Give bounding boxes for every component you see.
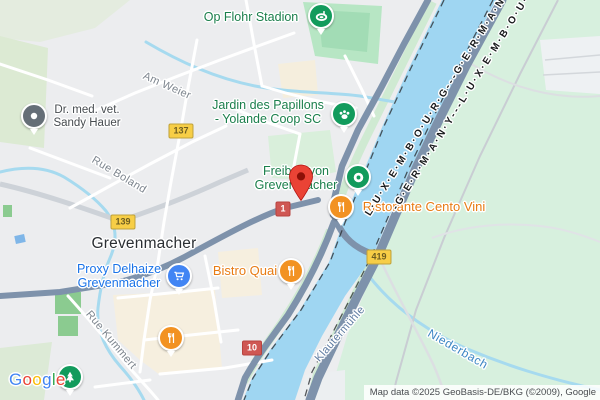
proxy-label-line2: Grevenmacher	[77, 276, 161, 290]
proxy-pin[interactable]	[166, 263, 192, 289]
poi-dot-icon	[28, 110, 40, 122]
bistro-pin[interactable]	[278, 258, 304, 284]
pool-ring-icon	[352, 171, 365, 184]
bistro-label[interactable]: Bistro Quai	[213, 264, 277, 278]
jardin-pin[interactable]	[331, 101, 357, 127]
route-shield-cr139: 139	[110, 215, 135, 230]
jardin-label-line1: Jardin des Papillons	[212, 98, 324, 112]
proxy-label-line1: Proxy Delhaize	[77, 262, 161, 276]
stadium-label[interactable]: Op Flohr Stadion	[204, 10, 299, 24]
map-canvas[interactable]: 137 139 419 1 10 Op Flohr Stadion Dr. me…	[0, 0, 600, 400]
google-logo-letter: G	[9, 370, 23, 389]
vet-label-line1: Dr. med. vet.	[53, 104, 120, 117]
stadium-pin[interactable]	[308, 3, 334, 29]
vet-label[interactable]: Dr. med. vet. Sandy Hauer	[53, 104, 120, 130]
vet-label-line2: Sandy Hauer	[53, 117, 120, 130]
restaurant-icon	[285, 265, 297, 277]
vet-pin[interactable]	[21, 103, 47, 129]
google-logo[interactable]: Google	[9, 370, 66, 390]
route-shield-n10: 10	[242, 341, 262, 356]
google-logo-letter: e	[56, 370, 66, 389]
ristorante-pin[interactable]	[328, 194, 354, 220]
shopping-cart-icon	[173, 270, 185, 282]
google-logo-letter: g	[42, 370, 52, 389]
freibad-pin[interactable]	[345, 164, 371, 190]
stadium-icon	[315, 10, 328, 23]
town-restaurant-pin[interactable]	[158, 325, 184, 351]
red-pin-icon	[288, 164, 314, 202]
google-logo-letter: o	[23, 370, 33, 389]
jardin-label-line2: - Yolande Coop SC	[212, 112, 324, 126]
restaurant-icon	[335, 201, 347, 213]
route-shield-b419: 419	[366, 250, 391, 265]
proxy-label[interactable]: Proxy Delhaize Grevenmacher	[77, 262, 161, 290]
jardin-label[interactable]: Jardin des Papillons - Yolande Coop SC	[212, 98, 324, 126]
city-label[interactable]: Grevenmacher	[92, 237, 197, 251]
restaurant-icon	[165, 332, 177, 344]
destination-marker[interactable]	[288, 164, 314, 207]
google-logo-letter: o	[32, 370, 42, 389]
map-attribution: Map data ©2025 GeoBasis-DE/BKG (©2009), …	[364, 385, 600, 400]
paw-icon	[338, 108, 351, 121]
route-shield-cr137: 137	[168, 124, 193, 139]
